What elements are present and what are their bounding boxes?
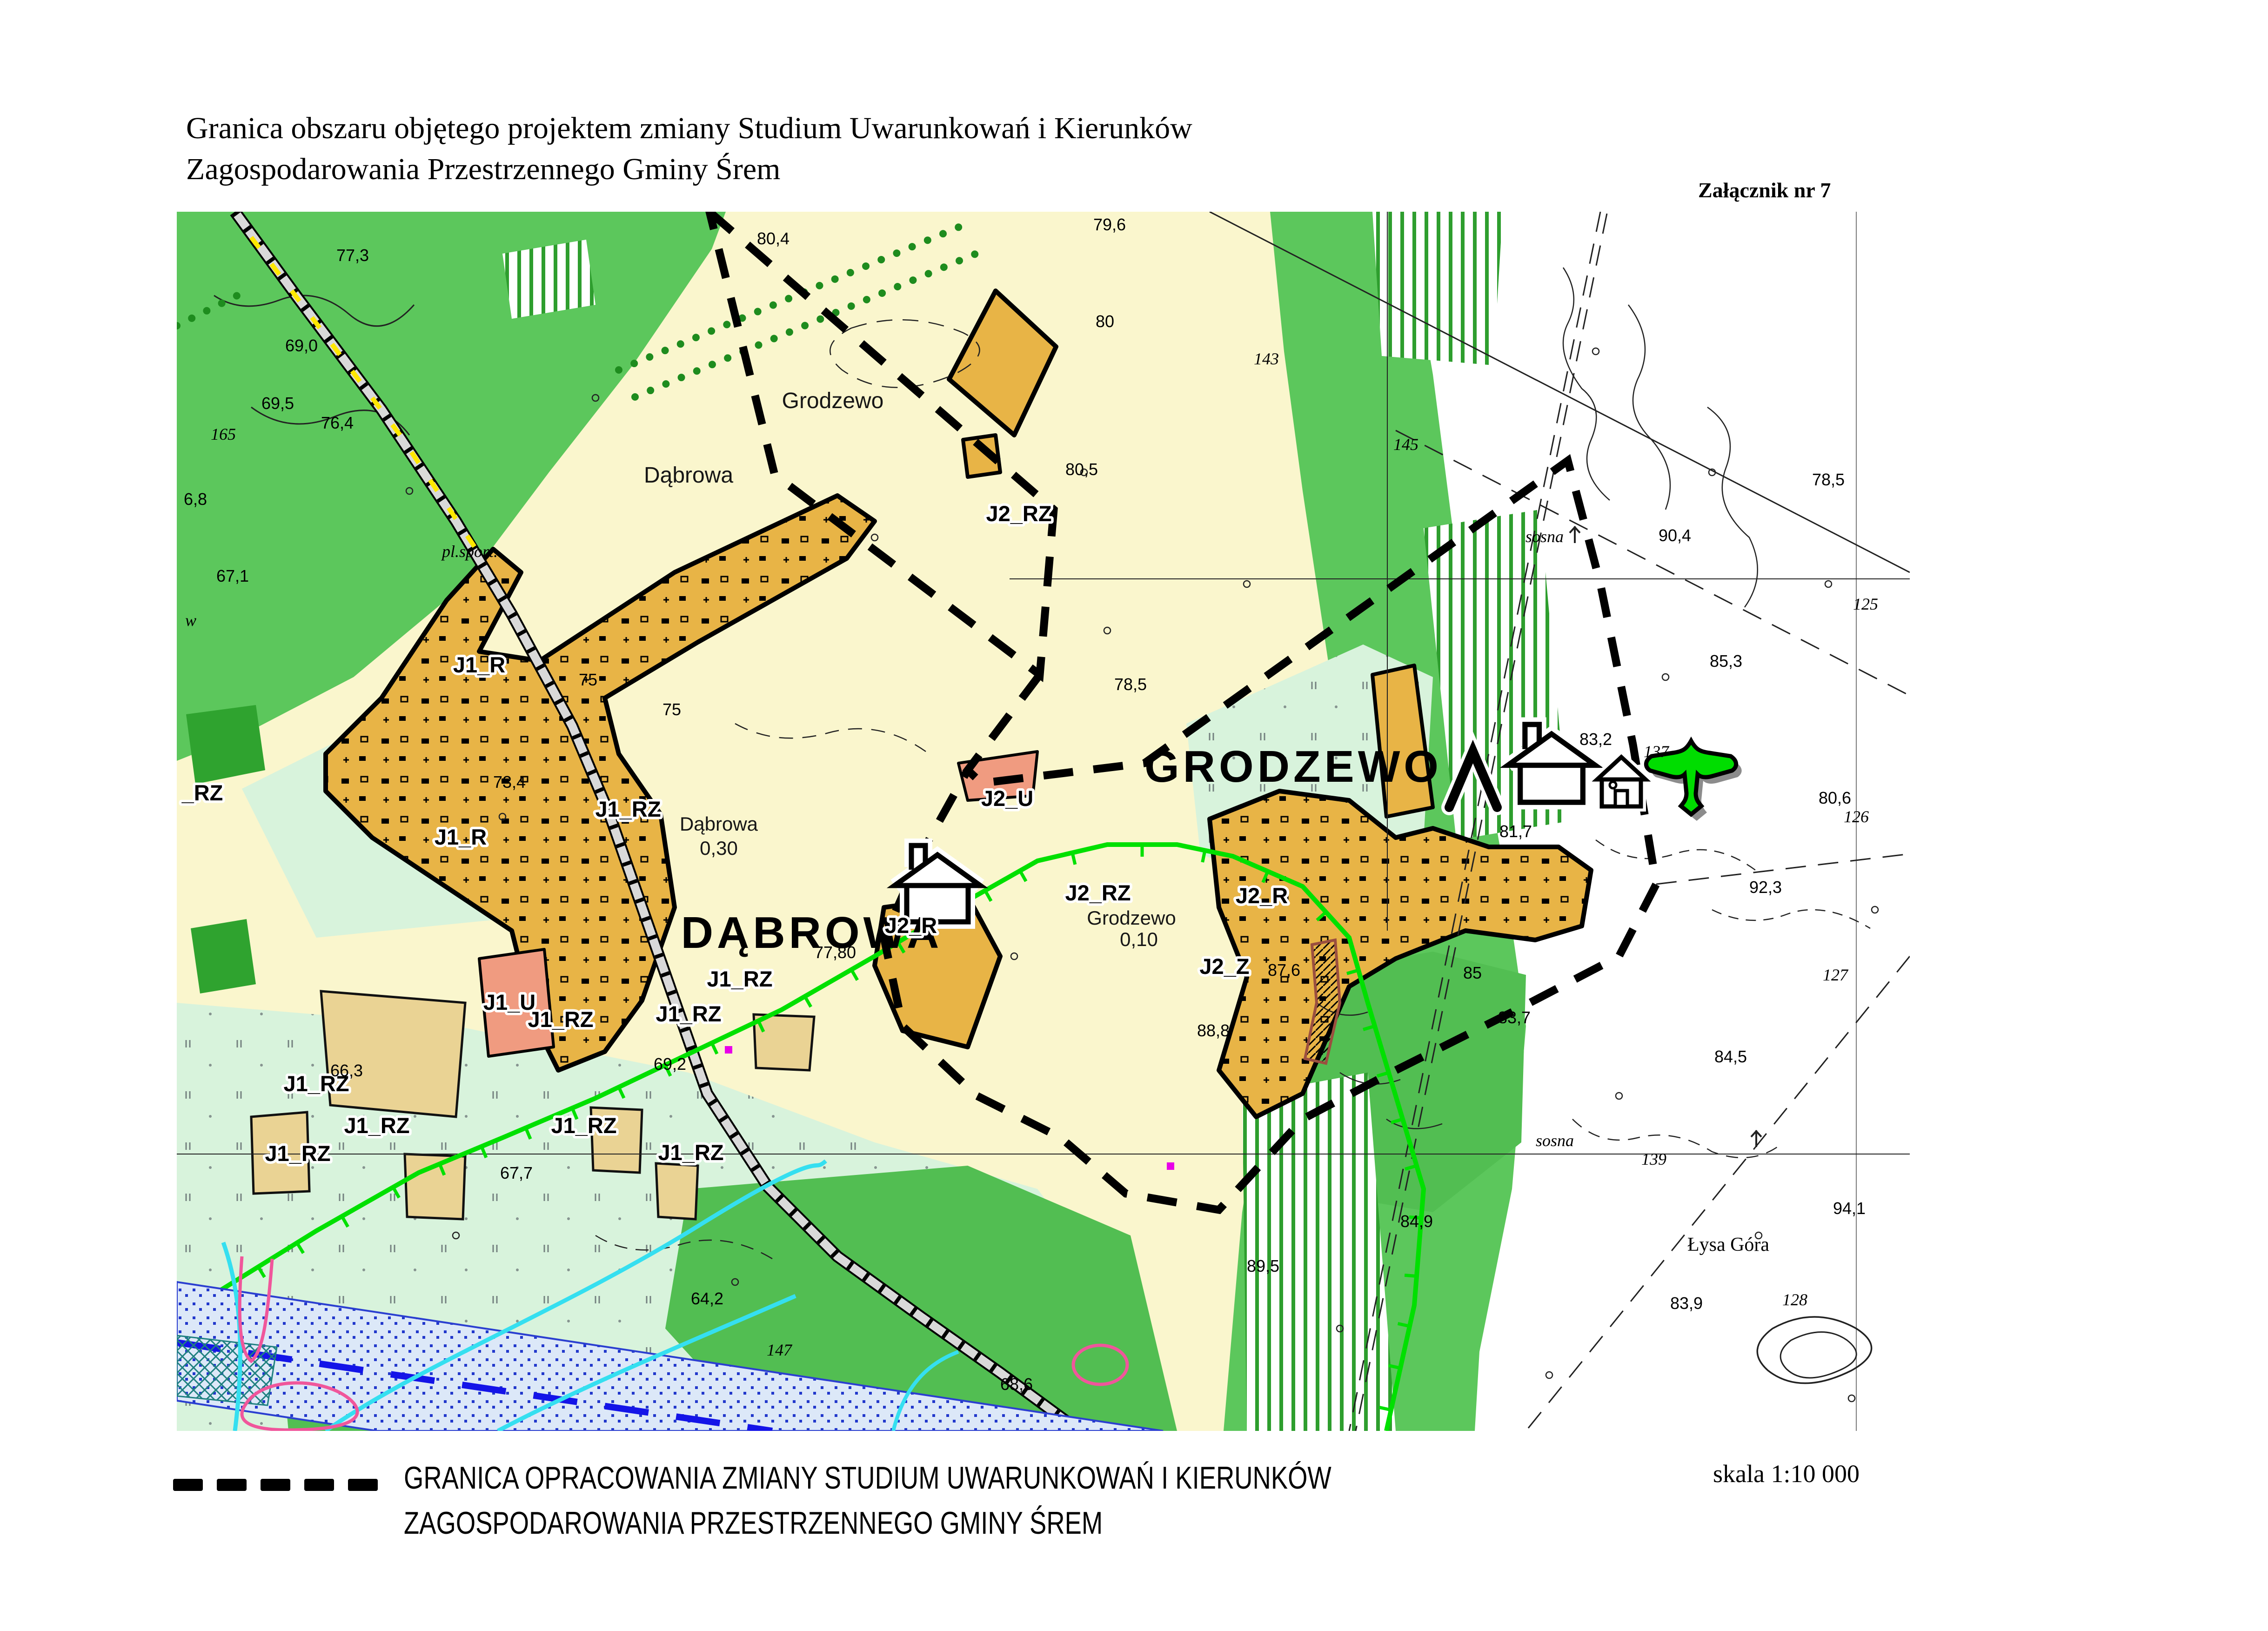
map-label: w <box>185 611 196 630</box>
legend-dash <box>348 1479 378 1491</box>
scale-label: skala 1:10 000 <box>1713 1459 1860 1488</box>
map-label: J1_RZ <box>656 1001 721 1026</box>
map-label: J1_RZ <box>528 1007 593 1032</box>
map-label: J1_RZ <box>265 1141 330 1166</box>
map-label: 139 <box>1641 1150 1666 1168</box>
map-label: J1_RZ <box>658 1140 723 1165</box>
map-label: 67,1 <box>216 566 249 585</box>
map-label: 78,5 <box>1812 470 1845 489</box>
map-label: Grodzewo <box>782 389 884 413</box>
attachment-number: Załącznik nr 7 <box>1698 178 1831 202</box>
map-label: 66,3 <box>330 1061 363 1080</box>
map-label: 0,30 <box>700 837 738 859</box>
map-label: 83,9 <box>1670 1294 1703 1313</box>
map-label: 6,8 <box>184 490 207 509</box>
map-label: 165 <box>211 425 236 443</box>
map-label: pl.sport. <box>441 542 498 561</box>
map-label: 94,1 <box>1833 1199 1866 1218</box>
map-label: Dąbrowa <box>680 813 758 835</box>
map-label: 80 <box>1096 312 1114 331</box>
map-label: 137 <box>1644 742 1670 761</box>
map-label: 69,5 <box>261 394 294 413</box>
map-label: 83,2 <box>1579 730 1612 749</box>
legend-dash <box>261 1479 290 1491</box>
map-label: 68,6 <box>1000 1375 1033 1394</box>
map-canvas: DĄBROWAGRODZEWOGrodzewoDąbrowaDąbrowa0,3… <box>177 212 1910 1431</box>
map-label: 145 <box>1393 435 1418 454</box>
map-label: 0,10 <box>1120 928 1158 950</box>
map-label: J2_RZ <box>986 501 1051 526</box>
legend-boundary-label: GRANICA OPRACOWANIA ZMIANY STUDIUM UWARU… <box>404 1456 1331 1545</box>
map-label: 80,4 <box>757 229 789 248</box>
map-label: 80,5 <box>1065 460 1098 479</box>
map-label: sosna <box>1536 1131 1574 1150</box>
map-label: 75 <box>579 670 597 689</box>
map-label: 81,7 <box>1499 822 1532 841</box>
map-label: 76,4 <box>321 413 354 432</box>
map-label: J1_RZ <box>707 967 772 991</box>
map-label: 69,2 <box>654 1054 686 1074</box>
map-label: 90,4 <box>1659 526 1691 545</box>
map-label: 77,80 <box>814 943 856 962</box>
map-label: J2_R <box>1236 883 1288 908</box>
legend-boundary-swatch <box>173 1479 378 1491</box>
legend-dash <box>173 1479 203 1491</box>
map-label: 147 <box>767 1341 793 1359</box>
map-label: 84,5 <box>1714 1047 1747 1066</box>
map-label: 73,4 <box>493 772 526 792</box>
map-label: 143 <box>1254 349 1279 368</box>
map-label: J2_U <box>981 786 1033 811</box>
legend-dash <box>304 1479 334 1491</box>
map-label: 79,6 <box>1093 215 1126 234</box>
map-label: 87,6 <box>1268 960 1300 980</box>
map-label: J2_R <box>885 913 937 938</box>
map-label: 89,5 <box>1247 1256 1279 1275</box>
map-label: sosna <box>1525 527 1564 546</box>
map-label: GRODZEWO <box>1144 742 1442 792</box>
green-road-tick <box>1405 1275 1417 1276</box>
map-label: 64,2 <box>691 1289 723 1308</box>
map-label: Dąbrowa <box>644 463 733 488</box>
map-label: 77,3 <box>336 246 369 265</box>
map-label: 83,7 <box>1498 1008 1531 1027</box>
teal-hatch-area <box>177 1336 277 1405</box>
map-label: J2_RZ <box>1065 880 1131 905</box>
map-label: 85 <box>1463 963 1482 982</box>
map-label: Łysa Góra <box>1687 1234 1769 1255</box>
map-label: 75 <box>662 700 681 719</box>
map-label: 84,9 <box>1400 1212 1433 1231</box>
map-label: J1_RZ <box>344 1113 409 1138</box>
page-title: Granica obszaru objętego projektem zmian… <box>186 108 1192 190</box>
map-label: 80,6 <box>1819 788 1851 807</box>
map-label: 128 <box>1782 1290 1807 1309</box>
map-label: J2_Z <box>1199 954 1249 979</box>
legend-dash <box>217 1479 247 1491</box>
map-label: 126 <box>1844 807 1869 826</box>
map-label: 127 <box>1823 966 1849 984</box>
map-label: _RZ <box>181 780 223 805</box>
map-label: J1_R <box>453 652 505 677</box>
map-label: 92,3 <box>1749 878 1782 897</box>
map-label: J1_RZ <box>595 797 661 821</box>
map-label: 125 <box>1853 595 1878 613</box>
map-label: 67,7 <box>500 1163 533 1182</box>
map-label: J1_R <box>435 825 487 849</box>
map-label: J1_RZ <box>551 1113 616 1138</box>
map-label: Grodzewo <box>1087 907 1176 929</box>
map-label: 88,8 <box>1197 1021 1230 1040</box>
map-label: 78,5 <box>1114 675 1147 694</box>
map-label: 69,0 <box>285 336 318 355</box>
map-label: 85,3 <box>1710 651 1742 671</box>
